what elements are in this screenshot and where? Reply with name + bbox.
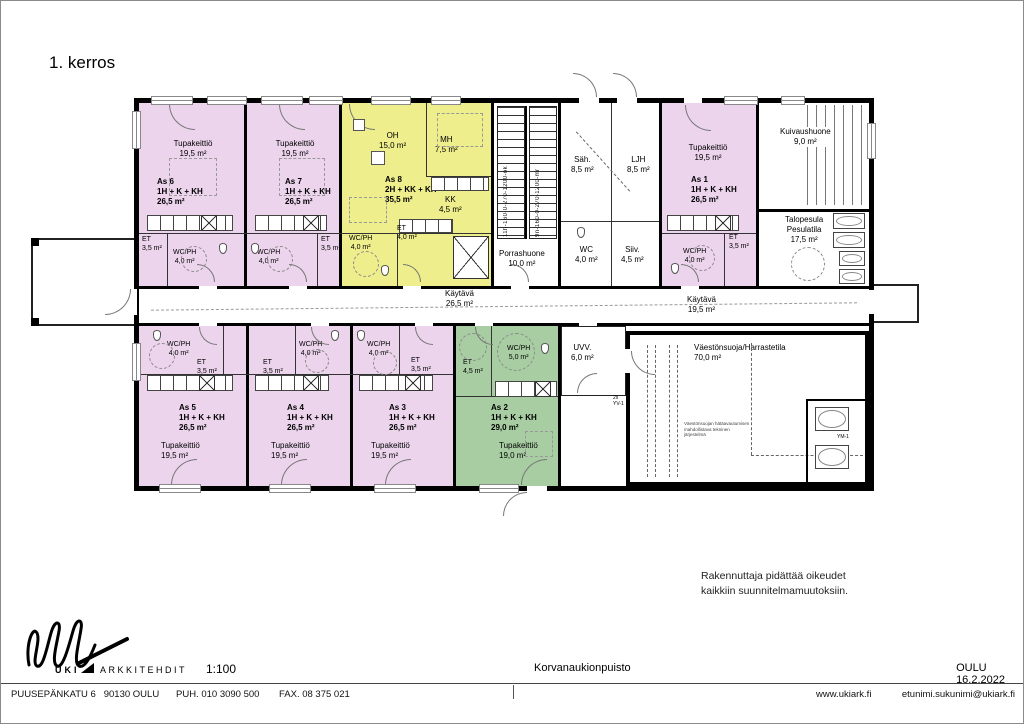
label-line: Käytävä — [445, 289, 474, 299]
window — [371, 96, 411, 105]
door-opening — [199, 286, 217, 290]
window — [724, 96, 758, 105]
drying-rack-hatch — [807, 105, 867, 205]
window — [867, 123, 876, 159]
door-arc — [613, 73, 637, 97]
label-line: 3,5 m² — [142, 245, 162, 254]
door-opening — [511, 286, 529, 290]
furniture — [279, 158, 325, 196]
office-email: etunimi.sukunimi@ukiark.fi — [902, 689, 1015, 700]
label-line: WC/PH — [367, 341, 390, 350]
door-opening — [867, 290, 875, 314]
wall — [339, 103, 342, 286]
door-opening — [199, 322, 217, 326]
label-line: WC — [575, 245, 598, 255]
turning-circle — [791, 247, 825, 281]
wall — [426, 103, 427, 176]
label-as3-et: ET 3,5 m² — [411, 357, 431, 375]
label-line: 8,5 m² — [627, 165, 650, 175]
window — [269, 484, 311, 493]
label-ljh: LJH 8,5 m² — [627, 155, 650, 175]
office-website: www.ukiark.fi — [816, 689, 871, 700]
door-arc — [503, 492, 527, 516]
label-kaytava-right: Käytävä 19,5 m² — [687, 295, 716, 315]
label-line: 8,5 m² — [571, 165, 594, 175]
window — [781, 96, 805, 105]
furniture — [353, 119, 365, 131]
window — [207, 96, 247, 105]
label-line: Säh. — [571, 155, 594, 165]
label-line: 4,0 m² — [397, 234, 417, 243]
stove — [405, 375, 421, 391]
label-ym1: YM-1 — [837, 434, 849, 440]
label-line: 3,5 m² — [729, 243, 749, 252]
door-arc — [573, 73, 597, 97]
wall — [759, 209, 869, 212]
label-line: As 2 — [491, 403, 537, 413]
label-line: Talopesula — [785, 215, 823, 225]
label-as8-wc: WC/PH 4,0 m² — [349, 235, 372, 253]
turning-circle — [689, 245, 715, 271]
stair-divider — [525, 106, 527, 239]
label-line: 26,5 m² — [287, 423, 333, 433]
label-line: ET — [411, 357, 431, 366]
turning-circle — [373, 351, 397, 375]
floor-title: 1. kerros — [49, 53, 115, 73]
wall — [724, 233, 725, 286]
stove — [199, 375, 215, 391]
laundry-machine — [833, 213, 865, 229]
label-uvv: UVV. 6,0 m² — [571, 343, 594, 363]
pipe-line — [677, 345, 678, 477]
stove — [303, 375, 319, 391]
label-line: 15,0 m² — [379, 141, 406, 151]
label-line: 17,5 m² — [785, 235, 823, 245]
wall — [246, 326, 249, 486]
disclaimer-line: kaikkiin suunnitelmamuutoksiin. — [701, 584, 848, 599]
label-line: ET — [263, 359, 283, 368]
kitchen-counter — [359, 375, 433, 391]
titleblock-divider — [513, 685, 514, 699]
label-line: 19,5 m² — [687, 305, 716, 315]
wall — [167, 233, 168, 286]
label-wc: WC 4,0 m² — [575, 245, 598, 265]
window — [261, 96, 303, 105]
door-opening — [527, 486, 547, 491]
label-line: 26,5 m² — [179, 423, 225, 433]
label-line: LJH — [627, 155, 650, 165]
logo-triangle-icon — [81, 663, 94, 673]
stair-code-right: 9n-160-0-270-1200-mr — [535, 117, 541, 237]
door-opening — [684, 98, 702, 103]
wall — [453, 326, 456, 486]
window — [431, 96, 461, 105]
label-line: 3,5 m² — [321, 245, 341, 254]
window — [132, 343, 141, 381]
kitchen-counter — [147, 215, 233, 231]
door-opening — [617, 98, 637, 103]
kitchen-counter — [147, 375, 233, 391]
titleblock-rule — [1, 683, 1024, 684]
label-as6-kitchen: Tupakeittiö 19,5 m² — [153, 139, 233, 159]
label-line: 19,5 m² — [673, 153, 743, 163]
label-kuivaushuone: Kuivaushuone 9,0 m² — [779, 127, 832, 147]
label-line: 2H + KK + KH — [385, 185, 437, 195]
label-line: järjestelmä — [684, 432, 749, 438]
turning-circle — [149, 343, 175, 369]
label-kaytava-left: Käytävä 26,5 m² — [445, 289, 474, 309]
label-as5-et: ET 3,5 m² — [197, 359, 217, 377]
label-as8-oh: OH 15,0 m² — [379, 131, 406, 151]
furniture — [169, 158, 217, 196]
wall — [611, 103, 612, 286]
stair-code-left: 11h-160-0-270-1200-ok — [503, 117, 509, 237]
drawing-sheet: 1. kerros — [0, 0, 1024, 724]
door-opening — [311, 322, 329, 326]
label-line: OH — [379, 131, 406, 141]
stair-flight — [529, 106, 557, 239]
wall — [659, 103, 662, 286]
stove — [201, 215, 217, 231]
wall — [244, 103, 247, 286]
label-line: ET — [142, 236, 162, 245]
office-address: PUUSEPÄNKATU 6 90130 OULU — [11, 689, 159, 700]
label-talopesula: Talopesula Pesulatila 17,5 m² — [785, 215, 823, 245]
label-line: ET — [321, 236, 341, 245]
label-line: Väestönsuojan hätäavautumisen — [684, 421, 749, 427]
label-as4-et: ET 3,5 m² — [263, 359, 283, 377]
label-line: As 1 — [691, 175, 737, 185]
label-as7-kitchen: Tupakeittiö 19,5 m² — [257, 139, 333, 159]
label-line: WC/PH — [349, 235, 372, 244]
label-line: 26,5 m² — [389, 423, 435, 433]
pipe-line — [669, 345, 670, 477]
elevator — [453, 236, 489, 279]
stair-flight — [497, 106, 525, 239]
label-as1-et: ET 3,5 m² — [729, 234, 749, 252]
label-line: 26,5 m² — [691, 195, 737, 205]
turning-circle — [497, 333, 535, 371]
stove — [535, 381, 551, 397]
label-porrashuone: Porrashuone 10,0 m² — [499, 249, 545, 269]
wall — [399, 326, 400, 374]
label-line: 1H + K + KH — [179, 413, 225, 423]
label-line: As 5 — [179, 403, 225, 413]
scale-label: 1:100 — [206, 662, 236, 676]
logo-text-uki: UKI — [55, 665, 80, 675]
door-opening — [289, 286, 307, 290]
stove — [303, 215, 319, 231]
label-line: Tupakeittiö — [673, 143, 743, 153]
wall — [295, 326, 296, 374]
project-name: Korvanaukionpuisto — [534, 662, 631, 674]
wall — [561, 221, 659, 222]
ventilation-unit — [815, 407, 849, 431]
label-line: As 8 — [385, 175, 437, 185]
label-line: 26,5 m² — [285, 197, 331, 207]
wall — [756, 103, 759, 286]
window — [159, 484, 201, 493]
office-phone: PUH. 010 3090 500 — [176, 689, 259, 700]
laundry-machine — [833, 232, 865, 248]
door-opening — [130, 289, 137, 315]
label-line: UVV. — [571, 343, 594, 353]
label-as1-kitchen: Tupakeittiö 19,5 m² — [673, 143, 743, 163]
window — [151, 96, 193, 105]
label-as3-kitchen: Tupakeittiö 19,5 m² — [371, 441, 410, 461]
window — [374, 484, 416, 493]
door-opening — [681, 286, 699, 290]
door-opening — [475, 322, 493, 326]
label-siiv: Siiv. 4,5 m² — [621, 245, 644, 265]
label-as6-et: ET 3,5 m² — [142, 236, 162, 254]
office-fax: FAX. 08 375 021 — [279, 689, 350, 700]
label-shelter-note: Väestönsuojan hätäavautumisen mahdollist… — [684, 421, 749, 438]
door-opening — [403, 286, 421, 290]
label-line: Käytävä — [687, 295, 716, 305]
toilet — [577, 227, 585, 238]
laundry-machine — [839, 251, 865, 266]
wall-post — [31, 318, 39, 326]
label-door-code: 2x YV-1 — [613, 395, 624, 407]
label-line: 1H + K + KH — [287, 413, 333, 423]
label-line: 26,5 m² — [445, 299, 474, 309]
label-as5-kitchen: Tupakeittiö 19,5 m² — [161, 441, 200, 461]
wall — [558, 103, 561, 286]
floor-plan: Tupakeittiö 19,5 m² As 6 1H + K + KH 26,… — [134, 98, 874, 491]
furniture — [437, 113, 483, 147]
label-line: 4,0 m² — [575, 255, 598, 265]
label-line: Kuivaushuone — [780, 127, 831, 137]
label-line: Väestönsuoja/Harrastetila — [694, 343, 786, 353]
label-as4-kitchen: Tupakeittiö 19,5 m² — [271, 441, 310, 461]
label-sah: Säh. 8,5 m² — [571, 155, 594, 175]
furniture — [525, 431, 553, 457]
wall — [491, 103, 494, 286]
label-as8-unit: As 8 2H + KK + KH 35,5 m² — [385, 175, 437, 205]
label-shelter: Väestönsuoja/Harrastetila 70,0 m² — [694, 343, 786, 363]
wall — [223, 326, 224, 374]
label-line: 1H + K + KH — [389, 413, 435, 423]
label-line: ET — [397, 225, 417, 234]
label-line: As 4 — [287, 403, 333, 413]
window — [479, 484, 519, 493]
label-line: 1H + K + KH — [691, 185, 737, 195]
label-as8-kk: KK 4,5 m² — [439, 195, 462, 215]
wall — [317, 233, 318, 286]
label-line: 4,5 m² — [463, 368, 483, 377]
label-as2-et: ET 4,5 m² — [463, 359, 483, 377]
wall — [350, 326, 353, 486]
label-line: Pesulatila — [785, 225, 823, 235]
kitchen-counter — [431, 177, 489, 191]
label-line: Porrashuone — [499, 249, 545, 259]
label-line: ET — [197, 359, 217, 368]
label-line: Tupakeittiö — [161, 441, 200, 451]
label-line: 9,0 m² — [780, 137, 831, 147]
label-as5-unit: As 5 1H + K + KH 26,5 m² — [179, 403, 225, 433]
stove — [715, 215, 731, 231]
door-opening — [579, 98, 599, 103]
ventilation-unit — [815, 445, 849, 469]
laundry-machine — [839, 269, 865, 284]
label-line: Siiv. — [621, 245, 644, 255]
label-line: Tupakeittiö — [257, 139, 333, 149]
label-line: Tupakeittiö — [271, 441, 310, 451]
label-line: Tupakeittiö — [371, 441, 410, 451]
label-as2-unit: As 2 1H + K + KH 29,0 m² — [491, 403, 537, 433]
label-line: 26,5 m² — [157, 197, 203, 207]
furniture — [371, 151, 385, 165]
entrance-canopy — [31, 238, 134, 326]
pipe-line — [655, 345, 656, 477]
label-line: ET — [729, 234, 749, 243]
label-line: 1H + K + KH — [491, 413, 537, 423]
furniture — [349, 197, 387, 223]
disclaimer-line: Rakennuttaja pidättää oikeudet — [701, 569, 848, 584]
wall-post — [31, 238, 39, 246]
window — [309, 96, 343, 105]
label-line: KK — [439, 195, 462, 205]
turning-circle — [305, 349, 329, 373]
label-as7-et: ET 3,5 m² — [321, 236, 341, 254]
wall — [139, 233, 491, 234]
exit-vestibule — [874, 284, 919, 323]
label-as1-unit: As 1 1H + K + KH 26,5 m² — [691, 175, 737, 205]
disclaimer: Rakennuttaja pidättää oikeudet kaikkiin … — [701, 569, 848, 599]
label-line: 6,0 m² — [571, 353, 594, 363]
label-line: As 3 — [389, 403, 435, 413]
turning-circle — [353, 251, 379, 277]
label-line: 4,5 m² — [621, 255, 644, 265]
label-line: 35,5 m² — [385, 195, 437, 205]
label-as8-et: ET 4,0 m² — [397, 225, 417, 243]
label-line: YV-1 — [613, 401, 624, 407]
window — [132, 111, 141, 149]
label-as3-unit: As 3 1H + K + KH 26,5 m² — [389, 403, 435, 433]
label-line: Tupakeittiö — [153, 139, 233, 149]
label-line: 4,5 m² — [439, 205, 462, 215]
label-line: 3,5 m² — [411, 366, 431, 375]
door-opening — [415, 322, 433, 326]
label-line: 70,0 m² — [694, 353, 786, 363]
label-as4-unit: As 4 1H + K + KH 26,5 m² — [287, 403, 333, 433]
pipe-line — [751, 343, 752, 455]
logo-text-arkkitehdit: ARKKITEHDIT — [100, 665, 187, 675]
